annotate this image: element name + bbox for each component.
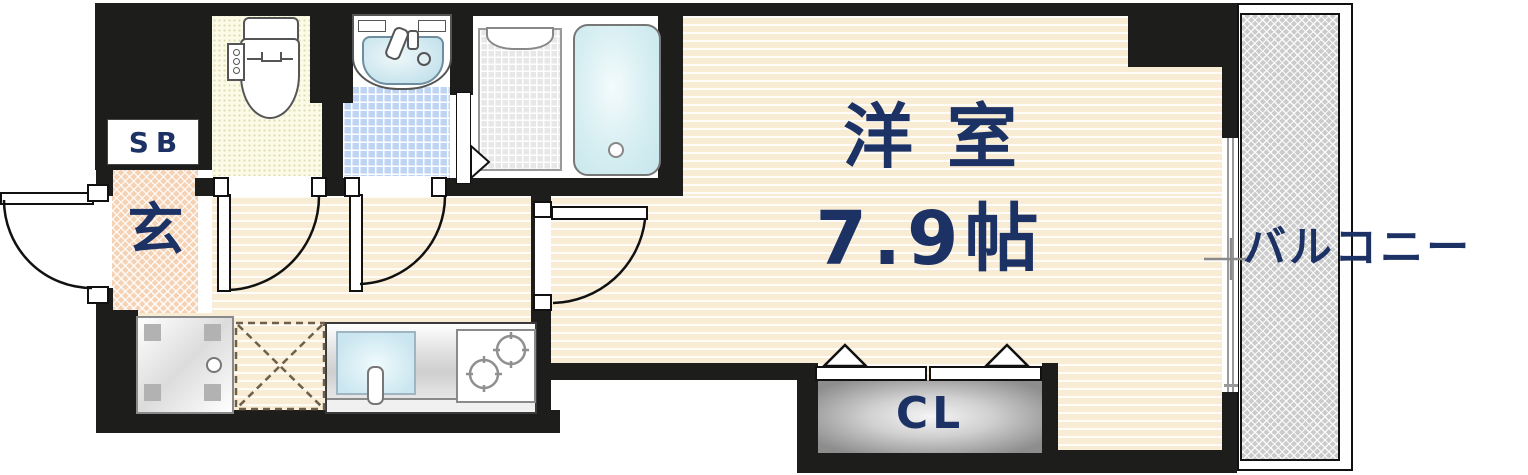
bathtub-drain bbox=[608, 142, 624, 158]
gas-stove bbox=[456, 329, 536, 403]
toilet-control-panel bbox=[227, 43, 245, 81]
washbasin-tray-right bbox=[418, 20, 446, 32]
washroom-door-leaf bbox=[349, 194, 363, 292]
mainroom-doorway-gap bbox=[535, 203, 551, 303]
wall-toilet-divider-upper bbox=[310, 3, 353, 103]
washbasin-tray-left bbox=[358, 20, 386, 32]
wall-mainroom-bottom-left bbox=[545, 363, 810, 380]
window-track-line bbox=[1227, 138, 1229, 392]
main-room-name: 洋室 bbox=[700, 102, 1160, 172]
kitchen-faucet bbox=[367, 366, 384, 405]
main-room-size: 7.9帖 bbox=[700, 202, 1160, 276]
wall-right-lower bbox=[1222, 392, 1237, 473]
washroom-door-jamb-right bbox=[431, 177, 447, 197]
toilet-door-leaf bbox=[217, 194, 231, 292]
entrance-label: 玄 bbox=[113, 203, 198, 259]
closet-label: CL bbox=[818, 392, 1042, 436]
wall-bathroom-right bbox=[658, 3, 683, 196]
shoe-box-label: SB bbox=[122, 126, 185, 159]
washbasin-drain bbox=[417, 52, 431, 66]
wall-washroom-bath-divider bbox=[450, 3, 473, 95]
balcony-label: バルコニー bbox=[1243, 227, 1472, 270]
wall-topright-pillar bbox=[1128, 3, 1222, 67]
washing-machine-pan bbox=[136, 316, 234, 414]
washbasin-faucet-knob bbox=[407, 30, 419, 50]
toilet-doorway-gap bbox=[218, 176, 322, 197]
toilet-door-jamb-right bbox=[311, 177, 327, 197]
bath-folding-door-track bbox=[456, 92, 471, 184]
toilet-door-jamb-left bbox=[213, 177, 229, 197]
wall-closet-right bbox=[1042, 363, 1058, 453]
closet-door-panel-left bbox=[815, 366, 927, 381]
entry-door-jamb-top bbox=[87, 184, 109, 202]
mainroom-door-jamb-bottom bbox=[533, 294, 552, 311]
sliding-window bbox=[1224, 138, 1238, 392]
wall-right-upper bbox=[1222, 3, 1237, 138]
wall-bottom-right bbox=[797, 450, 1237, 473]
washer-drain bbox=[206, 357, 222, 373]
window-track-line bbox=[1232, 138, 1234, 392]
mainroom-door-leaf bbox=[551, 206, 648, 220]
entry-door-jamb-bottom bbox=[87, 286, 109, 304]
shoe-box: SB bbox=[107, 119, 199, 165]
window-sash-meet bbox=[1224, 384, 1238, 387]
entry-door-leaf bbox=[0, 192, 94, 205]
mainroom-door-jamb-top bbox=[533, 201, 552, 218]
washroom-floor bbox=[343, 87, 453, 180]
washroom-door-jamb-left bbox=[344, 177, 360, 197]
shower-shelf bbox=[486, 27, 554, 50]
toilet-seat-notch bbox=[261, 52, 282, 62]
floor-plan: SB 玄 洋室 7.9帖 CL バルコニー bbox=[0, 0, 1528, 475]
closet-door-panel-right bbox=[929, 366, 1042, 381]
entry-door-arc bbox=[4, 200, 92, 288]
